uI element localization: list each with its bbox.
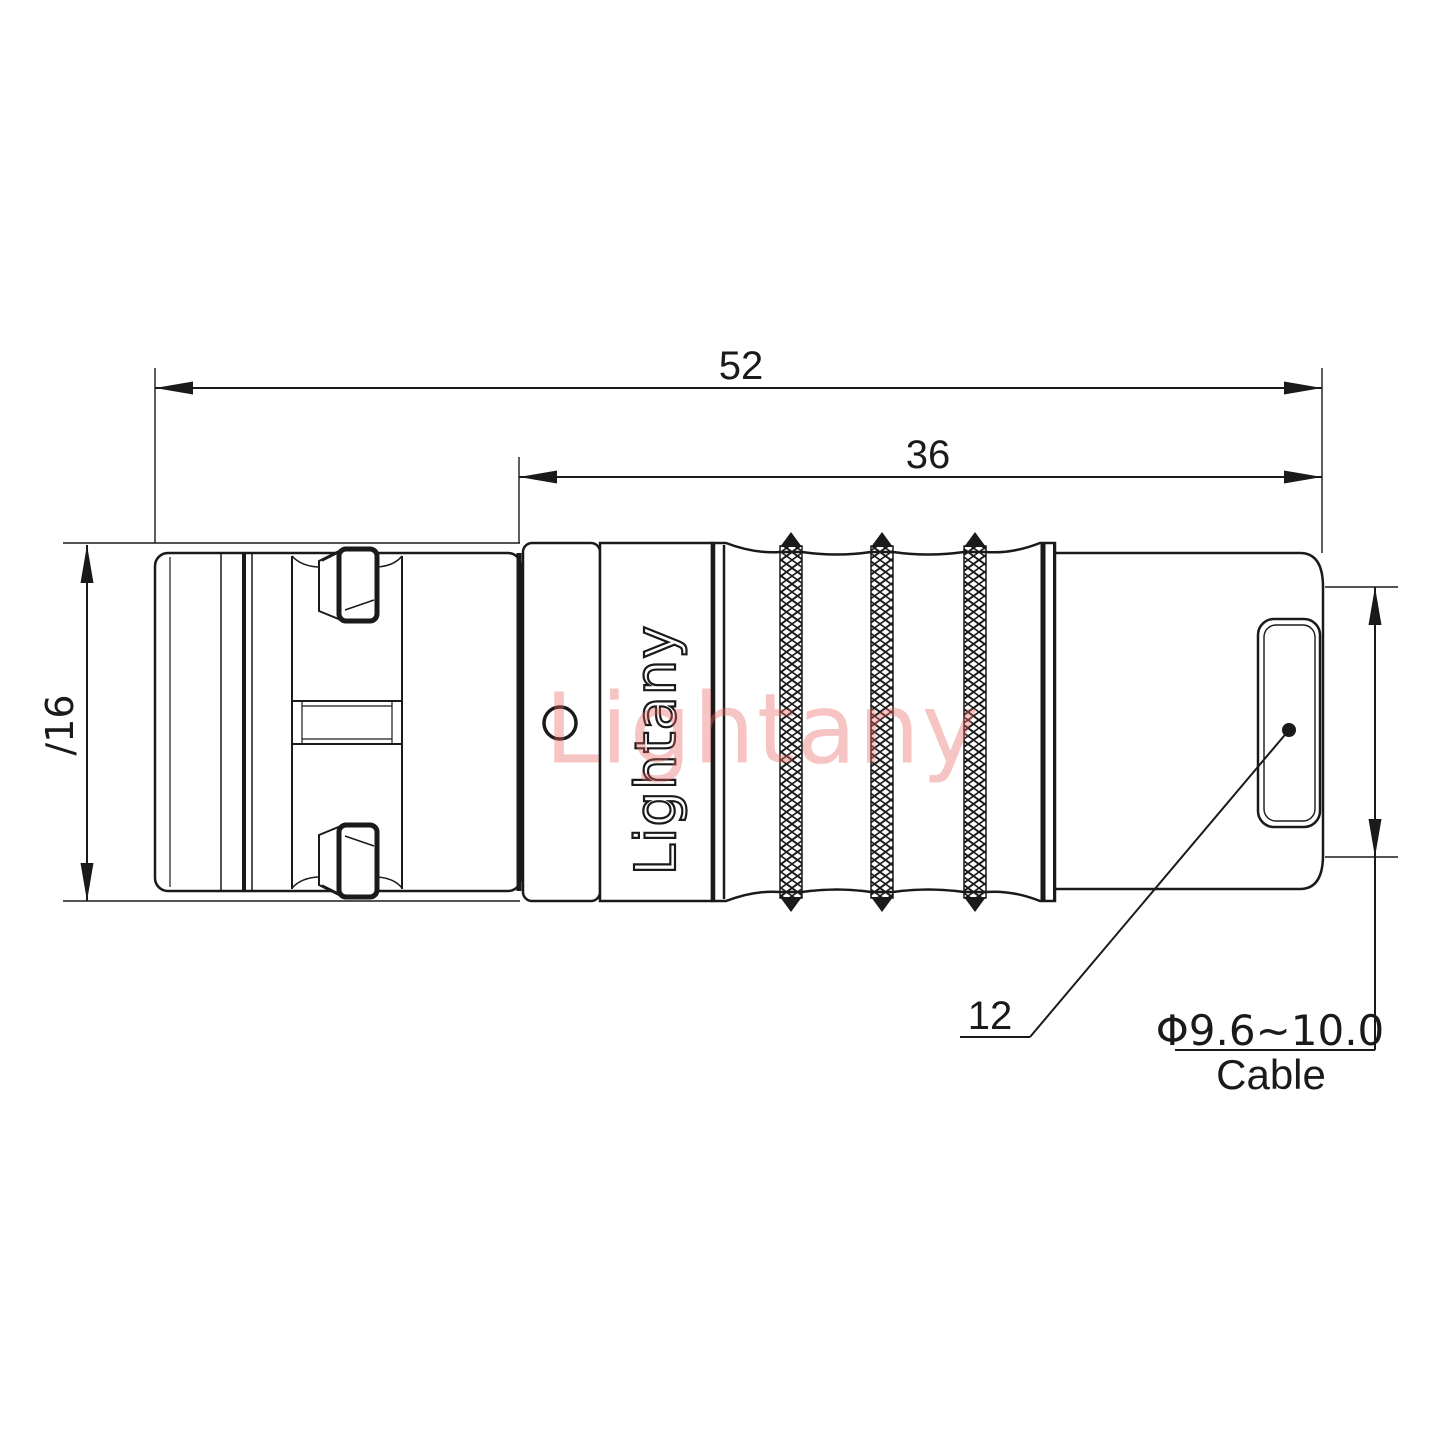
drawing-canvas: 52 36 ∕16 12 Φ9.6~10.0 Cable Lightany Li…: [0, 0, 1440, 1440]
arrow-left-icon: [519, 471, 557, 484]
arrow-right-icon: [1284, 382, 1322, 395]
arrow-up-icon: [1369, 587, 1382, 625]
arrow-down-icon: [1369, 819, 1382, 857]
dimension-overall-length: [155, 368, 1322, 553]
left-shell: [155, 549, 521, 897]
collar-hole: [544, 707, 576, 739]
connector-line-art: [0, 0, 1440, 1440]
arrow-right-icon: [1284, 471, 1322, 484]
end-face-label: 12: [968, 996, 1013, 1036]
cable-word-label: Cable: [1216, 1054, 1326, 1096]
arrow-up-icon: [81, 545, 94, 583]
dim-36-label: 36: [906, 435, 951, 475]
bayonet-slot: [292, 701, 402, 744]
dim-diameter-label: ∕16: [41, 694, 79, 755]
knurl-band-1: [780, 532, 802, 912]
arrow-left-icon: [155, 382, 193, 395]
dim-52-label: 52: [719, 346, 764, 386]
engraved-logo: Lightany: [629, 625, 685, 876]
knurl-band-2: [871, 532, 893, 912]
backshell: [1055, 553, 1323, 889]
knurl-band-3: [964, 532, 986, 912]
cable-diameter-label: Φ9.6~10.0: [1156, 1010, 1385, 1052]
bayonet-tab-top: [319, 549, 377, 621]
coupling-collar: [523, 543, 600, 901]
arrow-down-icon: [81, 863, 94, 901]
knurled-nut: [712, 532, 1055, 912]
bayonet-tab-bottom: [319, 825, 377, 897]
